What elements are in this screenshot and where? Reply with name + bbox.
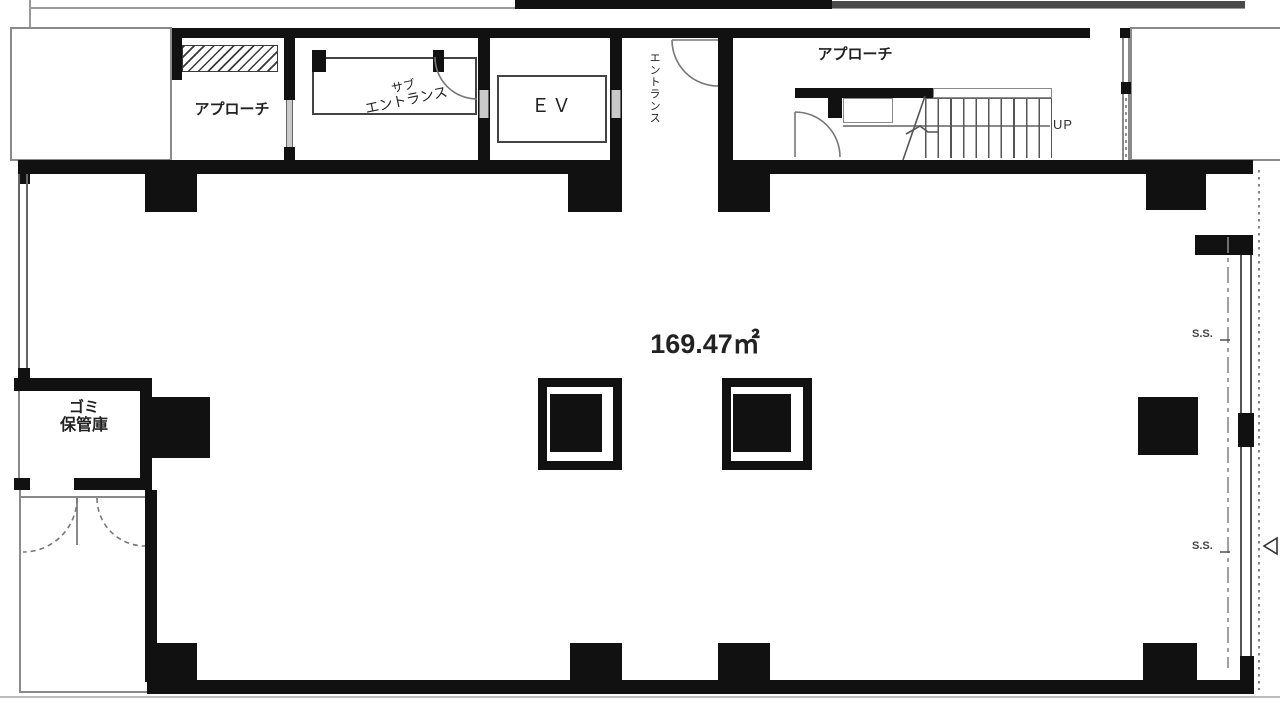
floor-area-label: 169.47㎡ — [605, 330, 805, 360]
ev-right-door-strip — [611, 90, 621, 118]
column-mid-frame-1 — [538, 378, 622, 470]
lower-left-outer-line-left — [19, 490, 21, 693]
ev-label: ＥＶ — [497, 97, 607, 118]
right-step-wall — [1195, 235, 1253, 255]
right-edge-triangle-marker — [1264, 538, 1277, 554]
column-top-2 — [568, 174, 622, 212]
approach-left-wall — [172, 28, 182, 80]
left-lower-wall — [145, 490, 157, 682]
ss-label-bottom: S.S. — [1192, 540, 1213, 552]
left-window-line-outer — [18, 174, 20, 374]
bottom-boundary-thin-line — [0, 696, 1280, 698]
column-bottom-3 — [718, 643, 770, 680]
garbage-room-right-wall — [140, 378, 152, 490]
garbage-label-line1: ゴミ — [30, 400, 138, 417]
ev-left-door-strip — [479, 90, 489, 118]
upper-row-top-wall — [172, 28, 1090, 38]
entrance-vertical-label: エントランス — [648, 52, 660, 157]
floor-plan: アプローチ サブ エントランス ＥＶ エントランス アプローチ UP — [0, 0, 1280, 712]
upper-right-divider-line2 — [1128, 38, 1130, 161]
hall-top-wall-left — [18, 160, 622, 174]
hall-top-wall-right — [718, 160, 1253, 174]
entrance-door-arc — [672, 40, 718, 86]
stair-landing-post — [828, 98, 842, 118]
column-mid-left — [152, 397, 210, 458]
approach-ramp-hatch — [182, 45, 278, 72]
lower-left-door-head-line — [21, 496, 145, 498]
left-window-line-inner — [26, 174, 28, 374]
approach-door-strip — [286, 100, 293, 147]
right-window-mullion — [1238, 413, 1254, 447]
stair-top-strip — [933, 88, 1052, 98]
approach-right-wall-lower — [284, 147, 295, 161]
ss-label-top: S.S. — [1192, 328, 1213, 340]
garbage-room-top-wall — [14, 378, 152, 391]
right-window-line-inner — [1250, 255, 1252, 681]
column-top-1 — [145, 174, 197, 212]
top-boundary-gray-bar — [832, 1, 1245, 8]
column-mid-frame-1-core — [550, 394, 602, 452]
column-mid-frame-2-core — [733, 394, 791, 452]
column-top-3 — [718, 174, 770, 212]
column-bottom-4 — [1143, 643, 1197, 680]
room-upper-right — [1130, 27, 1280, 161]
upper-right-divider-tick — [1121, 82, 1131, 94]
garbage-room-bottom-wall — [74, 478, 152, 490]
lower-left-door-frame-line — [76, 497, 78, 545]
garbage-room-left-line — [18, 391, 20, 478]
lower-left-outer-line-bottom — [19, 691, 147, 693]
stair-landing-box — [843, 98, 893, 123]
column-mid-right — [1138, 397, 1198, 455]
garbage-door-arc-1 — [23, 498, 77, 552]
hall-bottom-wall — [147, 680, 1254, 694]
top-left-tick-line — [29, 0, 31, 28]
column-bottom-right-stub — [1240, 656, 1254, 682]
garbage-room-label: ゴミ 保管庫 — [30, 400, 138, 434]
garbage-label-line2: 保管庫 — [30, 417, 138, 435]
column-mid-frame-2 — [722, 378, 812, 470]
approach-top-label: アプローチ — [800, 47, 910, 64]
column-bottom-2 — [570, 643, 622, 680]
approach-small-label: アプローチ — [182, 102, 282, 119]
entrance-right-wall — [718, 28, 733, 161]
stair-landing-wall — [795, 88, 933, 98]
column-top-right — [1146, 174, 1206, 210]
stair-up-label: UP — [1053, 118, 1073, 132]
stair-treads — [925, 98, 1052, 158]
room-upper-left — [10, 27, 172, 161]
garbage-door-arc-2 — [97, 498, 145, 546]
sub-entrance-post-right — [433, 50, 444, 72]
stair-door-arc — [795, 112, 840, 157]
stair-break-line — [903, 96, 925, 160]
upper-right-divider-line1 — [1122, 38, 1124, 161]
approach-right-wall-upper — [284, 28, 295, 100]
top-boundary-black-bar — [515, 0, 832, 9]
right-window-line-outer — [1240, 255, 1242, 681]
garbage-room-bottom-stub — [14, 478, 30, 490]
sub-entrance-post-left — [312, 50, 326, 72]
